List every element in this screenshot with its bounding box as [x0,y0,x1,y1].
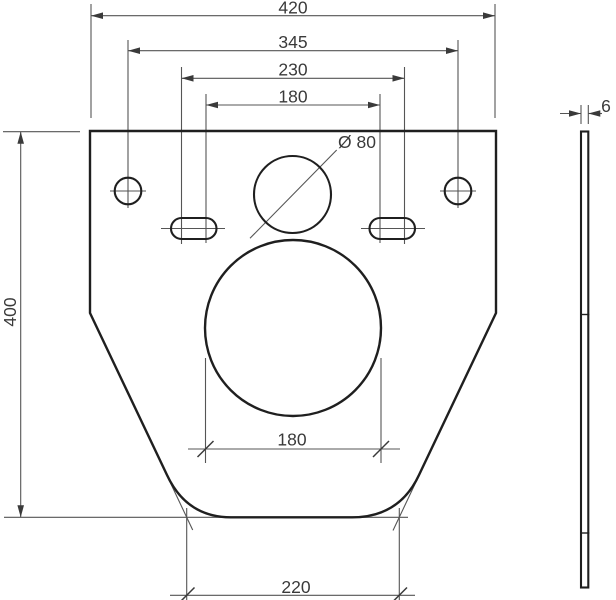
side-view [580,132,589,588]
label-plate-thickness: 6 [601,96,611,116]
arrow-345-right [446,47,458,54]
label-large-hole-diameter: 180 [277,430,306,450]
label-slot-inner-distance: 180 [278,86,307,106]
front-view [90,131,496,517]
arrow-420-right [483,12,495,19]
mounting-plate-drawing: 420 345 230 180 Ø 80 400 180 220 6 [0,0,616,600]
arrow-420-left [91,12,103,19]
dimension-arrows [17,12,600,517]
label-slot-outer-distance: 230 [278,60,307,80]
plate-outline [90,131,496,517]
leader-diameter-80 [250,150,337,238]
label-overall-width: 420 [278,0,307,18]
side-profile [581,132,588,588]
label-hole-center-distance: 345 [278,32,307,52]
dimension-labels: 420 345 230 180 Ø 80 400 180 220 6 [0,0,611,597]
arrow-180-top-right [368,102,380,109]
label-overall-height: 400 [0,297,20,326]
arrow-345-left [128,47,140,54]
arrow-400-top [17,132,24,144]
label-bottom-width: 220 [281,577,310,597]
large-hole-180 [205,240,381,416]
arrow-6-left [569,110,581,117]
label-top-hole-diameter: Ø 80 [338,132,376,152]
dimension-lines [21,16,602,596]
arrow-6-right [588,110,600,117]
arrow-230-right [393,75,405,82]
arrow-180-top-left [206,102,218,109]
technical-drawing-page: 420 345 230 180 Ø 80 400 180 220 6 [0,0,616,600]
arrow-400-bottom [17,505,24,517]
arrow-230-left [182,75,194,82]
